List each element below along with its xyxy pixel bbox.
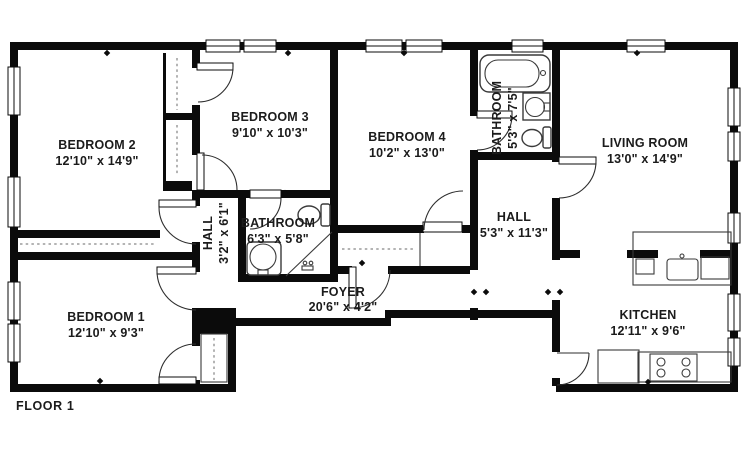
toilet-icon	[522, 130, 542, 147]
tick-marks	[97, 50, 652, 386]
window	[8, 282, 20, 320]
wall-segment	[462, 225, 470, 233]
window	[206, 40, 240, 52]
closet-outline	[201, 334, 227, 382]
wall-segment	[470, 150, 478, 270]
tick	[285, 50, 292, 57]
cabinet	[636, 259, 654, 274]
window	[728, 294, 740, 331]
window	[8, 324, 20, 362]
room-label-hall-2: HALL	[497, 210, 531, 224]
room-label-bathroom-1: BATHROOM	[241, 216, 315, 230]
wall-segment	[199, 190, 238, 198]
wall-segment	[228, 318, 388, 326]
window	[406, 40, 442, 52]
stove-icon	[650, 354, 697, 381]
tick	[104, 50, 111, 57]
window	[728, 88, 740, 126]
shower-icon	[303, 261, 307, 265]
room-dims-hall-2: 5'3" x 11'3"	[480, 226, 548, 240]
stove-icon	[682, 358, 690, 366]
wall-segment	[330, 42, 338, 282]
room-label-bedroom-4: BEDROOM 4	[368, 130, 446, 144]
stove-icon	[657, 358, 665, 366]
wall-segment	[163, 181, 192, 191]
wall-segment	[552, 250, 580, 258]
dishwasher-icon	[701, 257, 729, 279]
wall-segment	[556, 384, 738, 392]
door-bedroom-1	[157, 267, 196, 310]
room-dims-kitchen: 12'11" x 9'6"	[610, 324, 685, 338]
tick	[359, 260, 366, 267]
window	[366, 40, 402, 52]
room-dims-bedroom-1: 12'10" x 9'3"	[68, 326, 144, 340]
door-bedroom-1-closet	[159, 344, 196, 384]
window	[512, 40, 543, 52]
wall-segment	[388, 266, 470, 274]
wall-segment	[470, 152, 560, 160]
floor-plan-page: BEDROOM 2 12'10" x 14'9" BEDROOM 3 9'10"…	[0, 0, 750, 465]
door-bedroom-3-closet-lower	[197, 153, 237, 190]
wall-segment	[10, 384, 236, 392]
wall-segment	[338, 225, 424, 233]
door-bedroom-3-closet-upper	[197, 63, 233, 102]
tick	[483, 289, 490, 296]
kitchen-sink-icon	[667, 259, 698, 280]
window	[8, 67, 20, 115]
stove-icon	[682, 369, 690, 377]
tick	[471, 289, 478, 296]
toilet-icon	[543, 127, 551, 148]
room-label-living-room: LIVING ROOM	[602, 136, 688, 150]
wall-segment	[552, 300, 560, 352]
cabinet	[598, 350, 639, 383]
wall-segment	[192, 105, 200, 155]
window	[8, 177, 20, 227]
stove-icon	[657, 369, 665, 377]
door-kitchen	[557, 353, 589, 385]
wall-segment	[163, 113, 192, 120]
room-label-bedroom-1: BEDROOM 1	[67, 310, 145, 324]
closet-wall	[163, 120, 166, 181]
wall-segment	[470, 42, 478, 116]
shower-icon	[302, 266, 313, 270]
wall-segment	[10, 230, 160, 238]
room-dims-bedroom-2: 12'10" x 14'9"	[55, 154, 138, 168]
room-dims-bedroom-4: 10'2" x 13'0"	[369, 146, 445, 160]
window	[728, 132, 740, 161]
room-dims-foyer: 20'6" x 4'2"	[309, 300, 378, 314]
counter	[638, 352, 731, 382]
room-dims-bathroom-2: 5'3" x 7'5"	[506, 87, 520, 149]
tick	[545, 289, 552, 296]
wall-segment	[196, 308, 236, 334]
room-label-bedroom-3: BEDROOM 3	[231, 110, 309, 124]
wall-segment	[385, 310, 391, 326]
room-dims-hall-1: 3'2" x 6'1"	[217, 202, 231, 264]
room-label-hall-1: HALL	[201, 216, 215, 250]
window	[627, 40, 665, 52]
window	[728, 213, 740, 243]
room-label-foyer: FOYER	[321, 285, 365, 299]
kitchen-sink-icon	[680, 254, 684, 258]
floor-plan-svg: BEDROOM 2 12'10" x 14'9" BEDROOM 3 9'10"…	[0, 0, 750, 465]
room-dims-living-room: 13'0" x 14'9"	[607, 152, 683, 166]
wall-segment	[552, 42, 560, 162]
shower-icon	[309, 261, 313, 265]
wall-segment	[281, 190, 338, 198]
door-living-room	[559, 157, 596, 198]
room-dims-bedroom-3: 9'10" x 10'3"	[232, 126, 308, 140]
floor-label: FLOOR 1	[16, 399, 74, 413]
window	[244, 40, 276, 52]
tick	[97, 378, 104, 385]
toilet-icon	[321, 204, 330, 226]
tick	[557, 289, 564, 296]
room-label-bedroom-2: BEDROOM 2	[58, 138, 136, 152]
closet-wall	[163, 53, 166, 113]
room-dims-bathroom-1: 6'3" x 5'8"	[247, 232, 309, 246]
wall-segment	[627, 250, 658, 258]
door-bedroom-4	[423, 191, 463, 232]
wall-segment	[385, 310, 558, 318]
room-label-kitchen: KITCHEN	[620, 308, 677, 322]
door-bedroom-2	[159, 200, 196, 244]
wall-segment	[10, 252, 200, 260]
wall-segment	[238, 190, 246, 282]
room-label-bathroom-2: BATHROOM	[490, 81, 504, 155]
